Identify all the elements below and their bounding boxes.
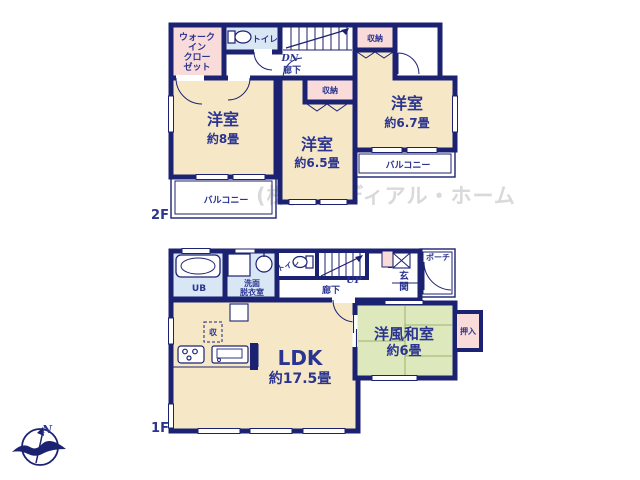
oshiire-label: 押入 (460, 326, 476, 336)
closet-top-label: 収納 (367, 33, 383, 43)
wic-label-line3: クロー (183, 52, 210, 63)
ldk-storage-label: 収 (209, 327, 218, 337)
hallway-2f-label: 廊下 (283, 64, 301, 76)
wic-label-line2: イン (188, 42, 206, 53)
stove-icon (178, 346, 204, 363)
floor-plan-page: (株)アイディアル・ホーム (0, 0, 640, 480)
shoe-cabinet-icon (382, 251, 410, 268)
bedroom-65-size: 約6.5畳 (294, 155, 339, 170)
hallway-1f-label: 廊下 (322, 284, 340, 296)
kitchen-sink-icon (212, 346, 248, 363)
balcony-right-label: バルコニー (386, 160, 431, 171)
compass: N (12, 423, 66, 465)
floor1-plan: UB 洗面 脱衣室 トイレ UP 廊下 玄 関 ポーチ LDK 約17.5畳 洋… (151, 249, 481, 437)
floor1-label: 1F (151, 421, 169, 436)
bedroom-8-name: 洋室 (207, 110, 239, 129)
compass-north-label: N (41, 423, 53, 436)
counter-wall-stub (250, 343, 258, 370)
washer-space-icon (228, 254, 250, 276)
floor-plan-drawing: ウォーク イン クロー ゼット トイレ DN 廊下 収納 収納 洋室 約8畳 洋… (0, 0, 640, 480)
washitsu-name: 洋風和室 (374, 325, 434, 343)
stairs-dn-label: DN (281, 53, 299, 64)
entrance-label-char1: 玄 (399, 270, 409, 282)
floor2-label: 2F (151, 208, 169, 223)
wic-label-line4: ゼット (183, 61, 210, 73)
bath-label: UB (192, 284, 206, 294)
washitsu-size: 約6畳 (386, 343, 421, 359)
toilet-2f-label: トイレ (252, 35, 278, 45)
bedroom-8-size: 約8畳 (207, 131, 239, 146)
sliding-door-mark (353, 315, 358, 347)
entrance-label-char2: 関 (399, 282, 409, 293)
washroom-label-line2: 脱衣室 (240, 287, 264, 297)
closet-mid-label: 収納 (322, 85, 338, 95)
bedroom-67-name: 洋室 (391, 94, 423, 113)
stair-landing-void (395, 25, 440, 78)
bathtub-icon (176, 255, 220, 277)
wic-label-line1: ウォーク (179, 32, 215, 43)
balcony-left-label: バルコニー (204, 195, 249, 206)
porch-label: ポーチ (426, 252, 450, 262)
ldk-room (171, 300, 358, 431)
toilet-icon (228, 31, 251, 43)
bedroom-67-size: 約6.7畳 (384, 115, 429, 130)
stairs-up-label: UP (346, 275, 362, 286)
ldk-name: LDK (278, 346, 324, 370)
floor2-plan: ウォーク イン クロー ゼット トイレ DN 廊下 収納 収納 洋室 約8畳 洋… (151, 25, 457, 223)
cupboard-icon (230, 304, 248, 321)
bedroom-65-name: 洋室 (301, 135, 333, 154)
ldk-size: 約17.5畳 (269, 370, 332, 387)
washroom-label-line1: 洗面 (244, 278, 260, 288)
